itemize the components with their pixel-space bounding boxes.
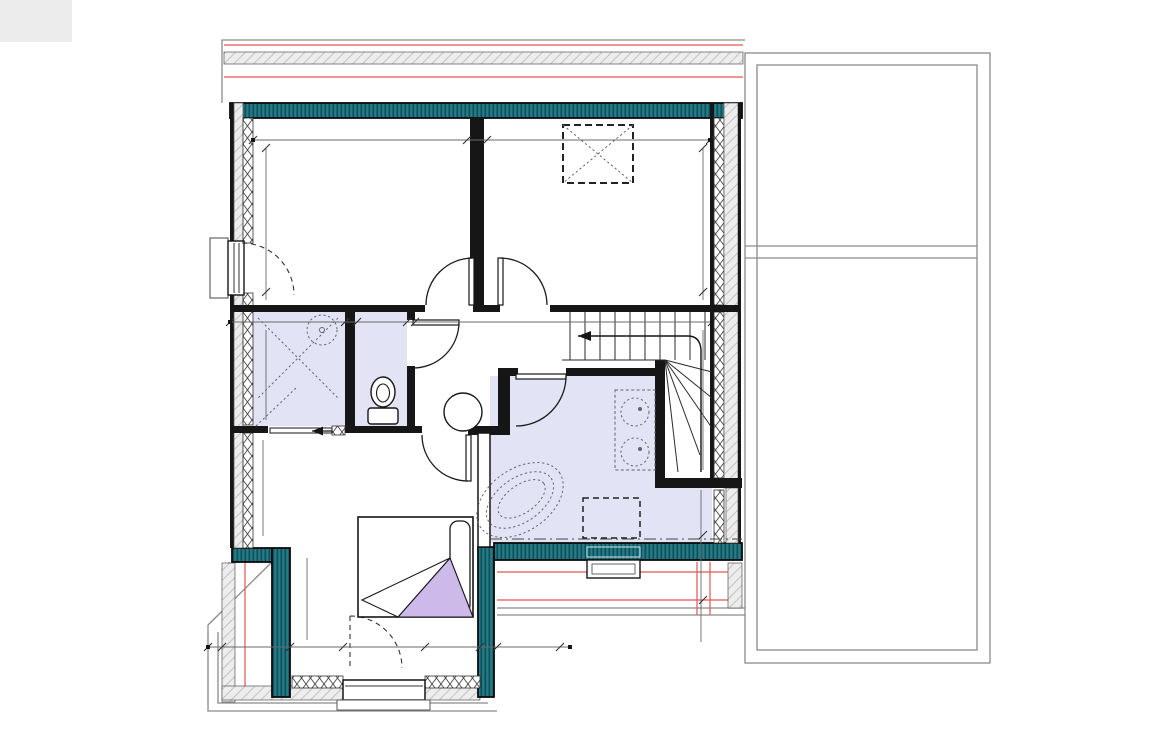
wall-corridor-top — [230, 305, 425, 312]
wall-bains-top — [566, 368, 655, 376]
roof-outline-outer-right — [745, 53, 990, 663]
window-bottom-sill — [337, 700, 430, 710]
level-marker — [444, 393, 482, 431]
wall-bottom-insulation-left — [292, 676, 343, 688]
teal-wall-left-stub — [232, 548, 272, 562]
window-bains — [587, 560, 640, 578]
wall-right-low-hatch — [726, 488, 738, 543]
floor-plan-page — [0, 0, 1164, 732]
window-swing-chambre2 — [242, 243, 294, 295]
window-left-frame — [210, 238, 228, 298]
roof-outline-bottom-right — [497, 608, 745, 615]
wall-left-insulation — [243, 293, 253, 425]
top-facade-hatch — [224, 52, 743, 64]
door-leaf-chambre2 — [469, 258, 474, 305]
wall-right-insulation — [714, 118, 724, 305]
door-swing-chambre2 — [426, 258, 473, 305]
wall-left-outer — [230, 103, 234, 548]
velux-roof-window — [563, 125, 633, 183]
wall-right-hatch — [724, 103, 738, 488]
door-swing-chambre3 — [500, 258, 547, 305]
window-left-glazing — [228, 241, 244, 295]
wall-corridor-top — [473, 305, 500, 312]
door-leaf-bains — [516, 374, 566, 379]
wall-right-low-insulation — [714, 490, 724, 543]
room-fill-bains — [490, 376, 712, 543]
wall-wc-left — [345, 312, 355, 433]
wall-chambre1-right — [478, 433, 490, 547]
door-leaf-wc — [413, 320, 459, 325]
floor-plan-drawing — [0, 0, 1164, 732]
wall-bains-left — [498, 368, 510, 433]
wall-stair-left — [655, 360, 665, 488]
room-fill-douche — [253, 312, 345, 426]
teal-wall-left-vertical — [272, 548, 290, 697]
wall-chambre1-top — [345, 426, 422, 433]
window-swing-chambre1 — [350, 616, 402, 668]
wall-wc-right — [407, 312, 415, 320]
toilet — [368, 377, 398, 424]
wall-left-insulation — [243, 118, 253, 243]
wall-corridor-top — [550, 305, 741, 312]
bottom-left-hatch — [222, 563, 235, 702]
wall-right-insulation — [714, 312, 724, 478]
wall-stair-bottom — [655, 478, 742, 488]
door-leaf-chambre1 — [466, 435, 471, 481]
roof-outline-inner-right — [757, 65, 977, 650]
bottom-right-hatch — [728, 563, 742, 608]
teal-wall-right-vertical — [478, 547, 494, 697]
wall-douche-bottom — [230, 426, 268, 433]
wall-wc-right — [407, 366, 415, 433]
bed — [358, 517, 473, 617]
wall-right-inner — [710, 103, 714, 488]
teal-wall-top — [230, 103, 742, 118]
wall-bottom-insulation-right — [425, 676, 480, 688]
window-bottom-glazing — [343, 680, 425, 700]
wall-right-outer — [738, 103, 741, 543]
door-leaf-chambre3 — [498, 258, 503, 305]
wall-left-insulation — [243, 433, 253, 548]
wall-left-hatch — [234, 103, 243, 548]
pocket-door-casing — [332, 426, 345, 435]
door-swing-wc — [413, 322, 459, 368]
roof-outline-top — [222, 40, 745, 103]
page-corner-artifact — [0, 0, 72, 42]
door-swing-chambre1 — [422, 435, 468, 481]
